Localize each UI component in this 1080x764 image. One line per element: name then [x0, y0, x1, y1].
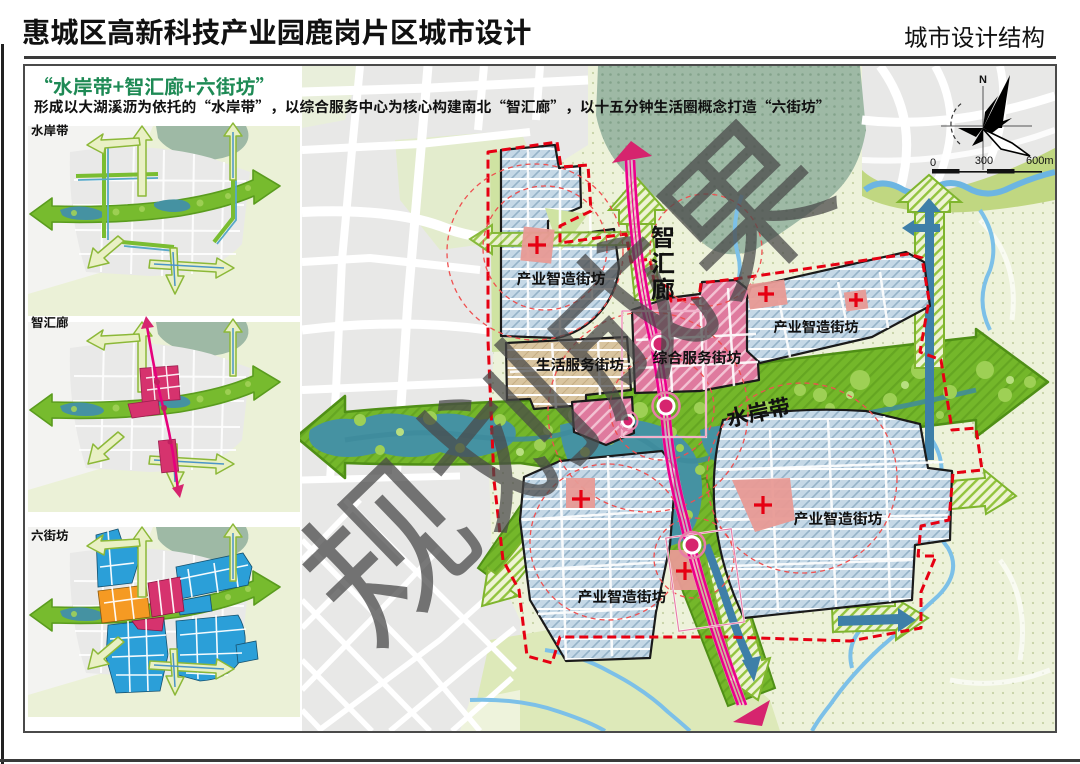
svg-text:N: N [979, 74, 987, 86]
svg-text:0: 0 [930, 157, 936, 169]
svg-text:300: 300 [975, 155, 993, 167]
svg-text:600m: 600m [1026, 155, 1054, 167]
